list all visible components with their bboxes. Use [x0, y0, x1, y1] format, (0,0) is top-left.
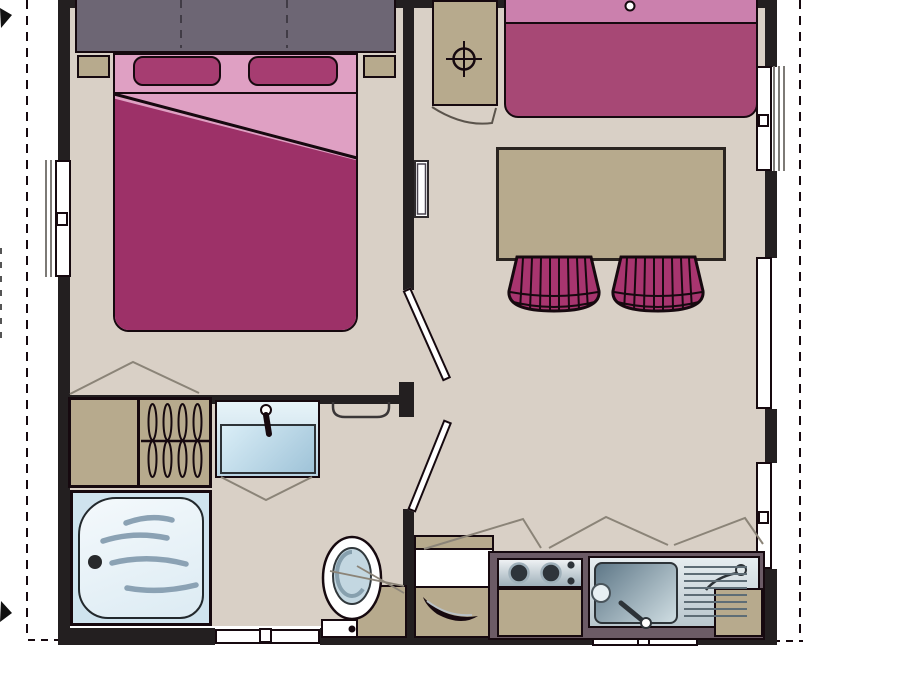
line-art-overlay	[0, 0, 900, 675]
dimension-arrow-bottom-left	[0, 601, 12, 622]
bathtub-waves	[103, 518, 196, 591]
wall-heater-inner-line	[418, 164, 426, 214]
boiler-symbol	[446, 41, 482, 77]
washbasin-tap-lever	[266, 415, 269, 434]
washbasin-door-swing	[221, 477, 312, 500]
kitchen-door-swings	[424, 517, 763, 549]
hob-burners	[510, 561, 575, 584]
wardrobe-door-swing	[70, 362, 199, 394]
boiler-cabinet-door-swing	[432, 107, 496, 124]
bed-fold-line	[114, 94, 357, 158]
dimension-arrow-top-left	[0, 8, 12, 28]
towel-rail	[333, 402, 389, 417]
floor-plan	[0, 0, 900, 675]
tufted-chair-left	[509, 257, 599, 311]
cabinet-handle	[423, 597, 478, 621]
tufted-chair-right	[613, 257, 703, 311]
window-top-pivot	[626, 2, 635, 11]
bath-drain	[88, 555, 102, 569]
toilet	[323, 537, 404, 633]
drainboard-lines	[684, 567, 747, 616]
